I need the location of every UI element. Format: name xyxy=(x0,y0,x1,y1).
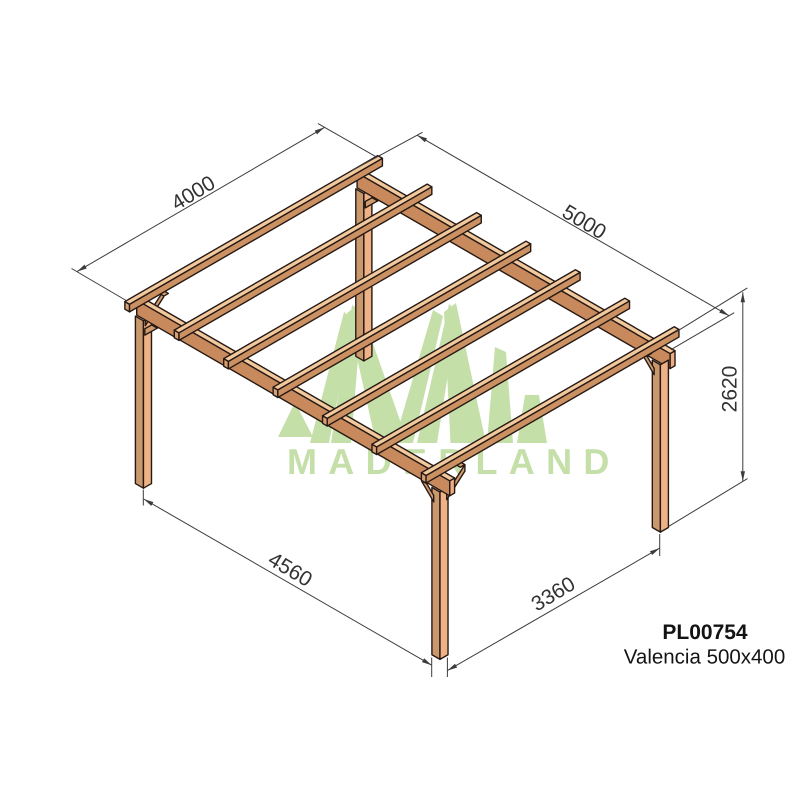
svg-text:PL00754: PL00754 xyxy=(662,621,748,644)
svg-text:2620: 2620 xyxy=(719,366,742,413)
svg-text:Valencia 500x400: Valencia 500x400 xyxy=(624,646,785,669)
